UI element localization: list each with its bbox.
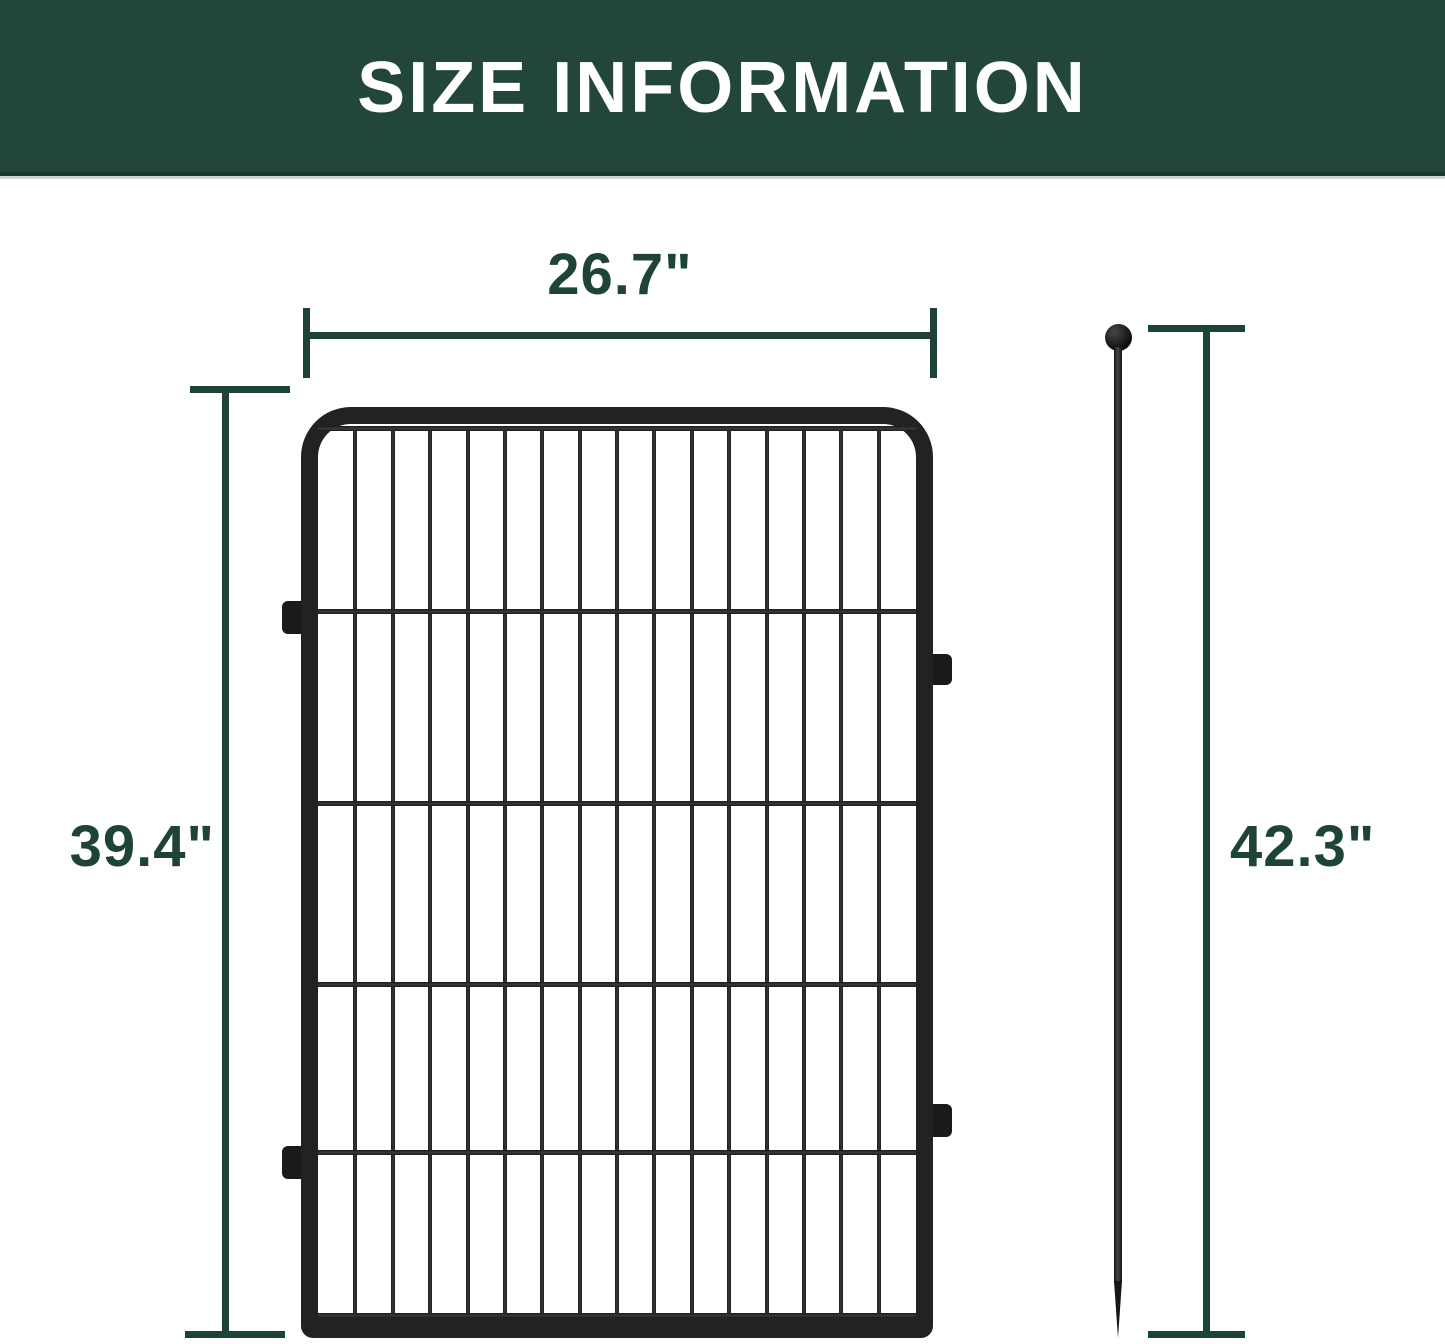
dimension-line [1203, 325, 1210, 1338]
fence-vertical-wire [391, 426, 395, 1316]
fence-horizontal-wire [318, 609, 916, 614]
dimension-end-cap [1148, 1331, 1245, 1338]
fence-vertical-wire [727, 426, 731, 1316]
fence-vertical-wire [690, 426, 694, 1316]
fence-vertical-wire [765, 426, 769, 1316]
fence-panel-graphic [301, 407, 933, 1338]
fence-vertical-wire [877, 426, 881, 1316]
header-banner: SIZE INFORMATION [0, 0, 1445, 179]
fence-vertical-wire [540, 426, 544, 1316]
panel-height-label: 39.4" [28, 818, 215, 876]
dimension-end-cap [1148, 325, 1245, 332]
dimension-end-cap [930, 308, 937, 378]
stake-height-label: 42.3" [1230, 818, 1430, 876]
fence-mesh [318, 424, 916, 1318]
dimension-end-cap [303, 308, 310, 378]
dimension-line [222, 386, 229, 1338]
fence-horizontal-wire [318, 1313, 916, 1318]
fence-horizontal-wire [318, 801, 916, 806]
fence-vertical-wire [839, 426, 843, 1316]
fence-connector-tab [282, 1146, 303, 1179]
fence-horizontal-wire [318, 982, 916, 987]
dimension-line [303, 332, 937, 339]
fence-vertical-wire [802, 426, 806, 1316]
fence-vertical-wire [466, 426, 470, 1316]
fence-connector-tab [931, 1104, 952, 1137]
dimension-end-cap [185, 1331, 285, 1338]
fence-vertical-wire [578, 426, 582, 1316]
fence-vertical-wire [615, 426, 619, 1316]
size-information-infographic: SIZE INFORMATION 26.7" 39.4" 42.3" [0, 0, 1445, 1344]
panel-width-label: 26.7" [303, 246, 937, 304]
dimension-end-cap [190, 386, 290, 393]
fence-vertical-wire [353, 426, 357, 1316]
fence-horizontal-wire [318, 426, 916, 431]
fence-vertical-wire [428, 426, 432, 1316]
fence-vertical-wire [503, 426, 507, 1316]
fence-vertical-wire [652, 426, 656, 1316]
fence-horizontal-wire [318, 1150, 916, 1155]
stake-rod [1114, 347, 1122, 1283]
stake-pointed-tip [1114, 1281, 1122, 1338]
page-title: SIZE INFORMATION [357, 47, 1088, 129]
fence-connector-tab [931, 654, 952, 685]
fence-connector-tab [282, 601, 303, 634]
